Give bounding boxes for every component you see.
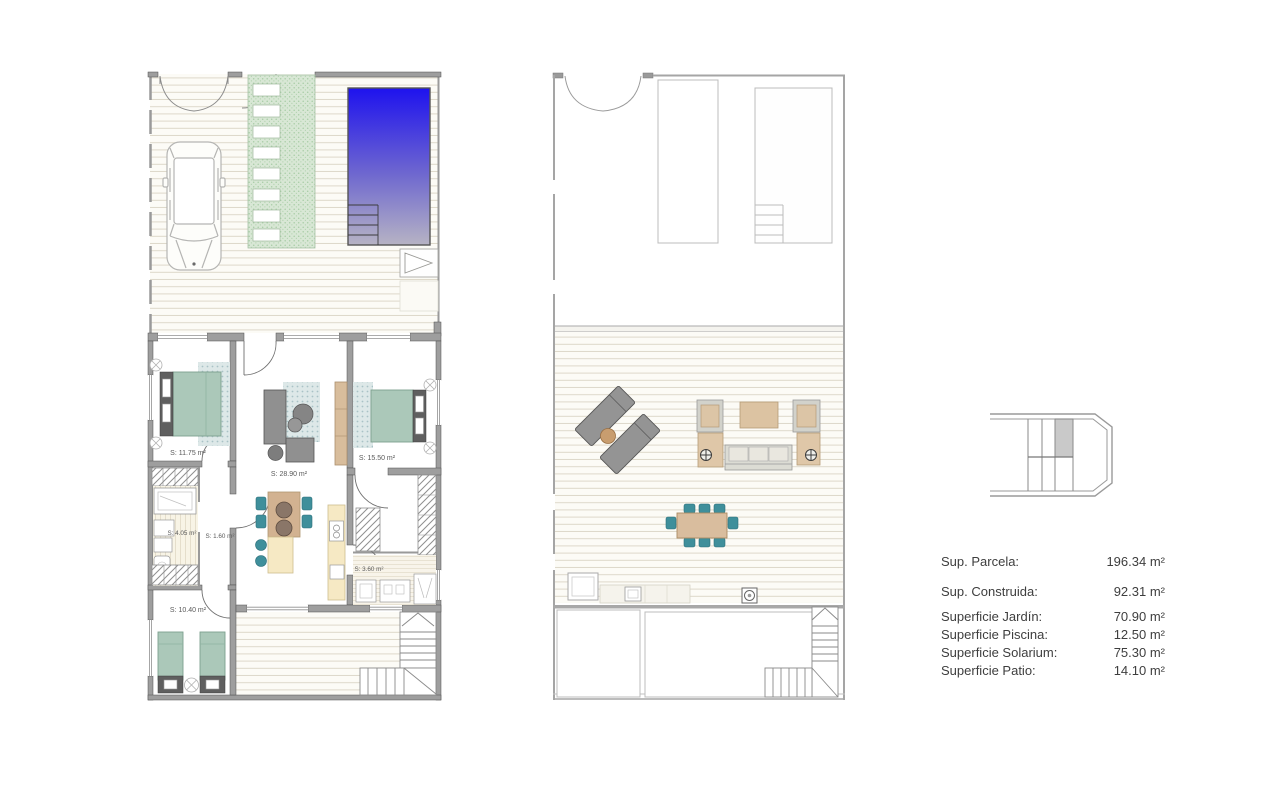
- summary-label: Sup. Parcela:: [941, 553, 1019, 570]
- wardrobe: [152, 565, 198, 585]
- room-label-living: S: 28.90 m²: [271, 471, 308, 478]
- single-bed: [200, 632, 225, 693]
- kitchen-counter: [328, 505, 345, 600]
- side-table: [288, 418, 302, 432]
- summary-row: Sup. Parcela: 196.34 m²: [941, 553, 1165, 570]
- room-label-bathroom-2: S: 3.60 m²: [354, 566, 383, 573]
- stool: [256, 556, 267, 567]
- lawn-path: [248, 75, 315, 248]
- deck-edge: [555, 326, 843, 332]
- solarium-floor-plan: [545, 64, 855, 709]
- outdoor-sink: [625, 587, 641, 601]
- summary-value: 12.50 m²: [1114, 626, 1165, 643]
- pool-outline: [755, 88, 832, 243]
- room-label-hall: S: 1.60 m²: [205, 533, 234, 540]
- kitchen-sink: [330, 565, 344, 579]
- vanity: [154, 538, 172, 552]
- single-bed: [158, 632, 183, 693]
- floorplan-canvas: S: 11.75 m²: [0, 0, 1280, 800]
- kitchen-island: [268, 537, 293, 573]
- plant: [185, 678, 199, 692]
- coffee-table: [740, 402, 778, 428]
- double-bed: [173, 372, 221, 436]
- side-chair: [797, 433, 820, 465]
- closet: [356, 508, 380, 551]
- washer: [356, 580, 376, 602]
- summary-row: Superficie Solarium: 75.30 m²: [941, 644, 1165, 661]
- chaise: [286, 438, 314, 462]
- summary-row: Superficie Patio: 14.10 m²: [941, 662, 1165, 679]
- pool: [348, 88, 430, 245]
- patio-wall: [553, 605, 845, 609]
- vanity: [380, 580, 410, 602]
- double-bed: [371, 390, 413, 442]
- summary-value: 196.34 m²: [1106, 553, 1165, 570]
- path-outline: [658, 80, 718, 243]
- summary-value: 75.30 m²: [1114, 644, 1165, 661]
- tall-cabinet: [335, 382, 347, 465]
- summary-label: Sup. Construida:: [941, 583, 1038, 600]
- patio-void: [557, 610, 640, 697]
- ground-floor-plan: S: 11.75 m²: [140, 64, 450, 709]
- stair-tread-highlight: [1055, 419, 1073, 457]
- summary-row: Sup. Construida: 92.31 m²: [941, 583, 1165, 600]
- room-label-bathroom-1: S: 4.05 m²: [167, 530, 196, 537]
- summary-label: Superficie Piscina:: [941, 626, 1048, 643]
- summary-row: Superficie Jardín: 70.90 m²: [941, 608, 1165, 625]
- bathroom-1: S: 4.05 m²: [152, 468, 198, 586]
- area-summary: Sup. Parcela: 196.34 m² Sup. Construida:…: [941, 553, 1165, 680]
- room-label-bedroom-3: S: 10.40 m²: [170, 607, 207, 614]
- side-table: [601, 429, 616, 444]
- summary-label: Superficie Solarium:: [941, 644, 1057, 661]
- summary-value: 14.10 m²: [1114, 662, 1165, 679]
- shower: [414, 574, 436, 604]
- summary-label: Superficie Patio:: [941, 662, 1036, 679]
- side-chair: [698, 433, 723, 467]
- sofa: [264, 390, 286, 444]
- room-label-bedroom-1: S: 11.75 m²: [170, 450, 206, 457]
- stair-section-detail: [985, 405, 1125, 505]
- summary-value: 92.31 m²: [1114, 583, 1165, 600]
- pouf: [268, 446, 283, 461]
- summary-label: Superficie Jardín:: [941, 608, 1042, 625]
- rug: [353, 382, 373, 448]
- stool: [256, 540, 267, 551]
- summary-value: 70.90 m²: [1114, 608, 1165, 625]
- car: [163, 142, 225, 270]
- summary-row: Superficie Piscina: 12.50 m²: [941, 626, 1165, 643]
- drain: [742, 588, 757, 603]
- solarium-deck: [555, 332, 843, 603]
- room-label-bedroom-2: S: 15.50 m²: [359, 455, 396, 462]
